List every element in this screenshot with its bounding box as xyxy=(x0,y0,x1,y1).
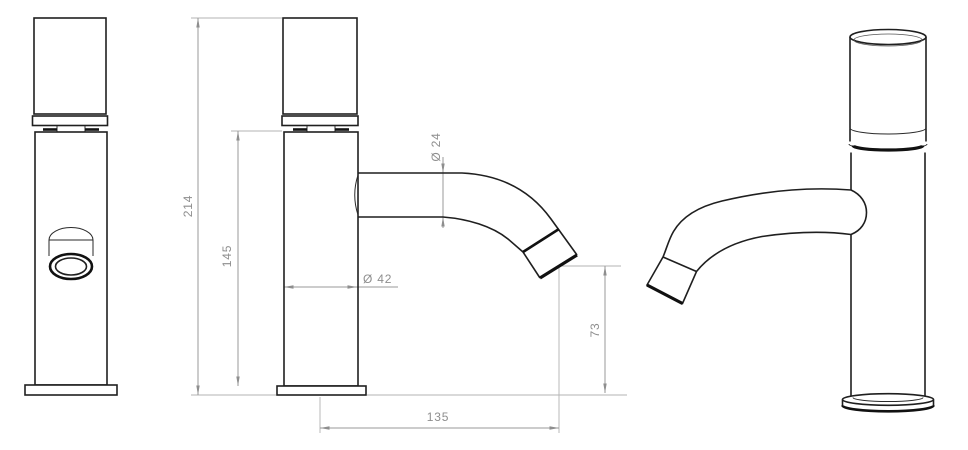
side-connector xyxy=(293,126,349,132)
dim-label-spout-diameter: Ø 24 xyxy=(429,132,443,161)
persp-handle-band xyxy=(850,128,926,134)
persp-joint-ring-dark xyxy=(853,146,923,151)
technical-drawing-canvas: 214 145 Ø 24 Ø 42 xyxy=(0,0,968,450)
dim-label-outlet-height: 73 xyxy=(588,323,602,338)
dim-spout-reach: 135 xyxy=(320,267,559,433)
arrowhead-down xyxy=(236,377,239,387)
arrowhead-down xyxy=(196,386,199,396)
dim-label-total-height: 214 xyxy=(181,195,195,217)
arrowhead-left xyxy=(284,285,294,288)
arrowhead-down xyxy=(603,384,606,394)
dim-total-height: 214 xyxy=(181,18,627,395)
persp-spout xyxy=(647,189,867,304)
dim-body-diameter: Ø 42 xyxy=(284,272,398,289)
side-outlet-face xyxy=(540,255,577,278)
dim-spout-diameter: Ø 24 xyxy=(429,132,445,228)
side-base xyxy=(277,386,366,395)
dim-label-spout-reach: 135 xyxy=(427,410,449,424)
persp-handle xyxy=(849,30,927,151)
arrowhead-up xyxy=(236,131,239,141)
dim-outlet-height: 73 xyxy=(559,266,621,393)
arrowhead-right xyxy=(348,285,358,288)
front-base xyxy=(25,385,117,395)
persp-body xyxy=(851,153,925,398)
front-outlet-inner xyxy=(56,258,87,275)
side-spout xyxy=(355,173,577,278)
persp-base-bottom xyxy=(843,406,934,412)
side-body xyxy=(284,132,358,386)
front-cap xyxy=(34,18,106,114)
arrowhead-down xyxy=(441,164,444,174)
front-connector xyxy=(43,126,99,132)
view-perspective xyxy=(647,30,934,412)
dim-body-height: 145 xyxy=(220,131,282,386)
arrowhead-left xyxy=(320,426,330,429)
front-cap-band xyxy=(33,116,108,126)
front-spout-end-on xyxy=(49,227,93,279)
arrowhead-right xyxy=(550,426,560,429)
persp-handle-top xyxy=(850,30,926,45)
dim-label-body-diameter: Ø 42 xyxy=(363,272,392,286)
dim-label-body-height: 145 xyxy=(220,245,234,267)
side-aerator-line xyxy=(523,229,559,252)
arrowhead-up xyxy=(441,217,444,227)
dimension-annotations: 214 145 Ø 24 Ø 42 xyxy=(181,18,627,433)
arrowhead-up xyxy=(196,18,199,28)
arrowhead-up xyxy=(603,266,606,276)
view-front xyxy=(25,18,117,395)
persp-base xyxy=(843,394,934,412)
faucet-drawing: 214 145 Ø 24 Ø 42 xyxy=(0,0,968,450)
view-side xyxy=(277,18,577,395)
side-cap-band xyxy=(282,116,358,126)
side-cap xyxy=(283,18,357,114)
